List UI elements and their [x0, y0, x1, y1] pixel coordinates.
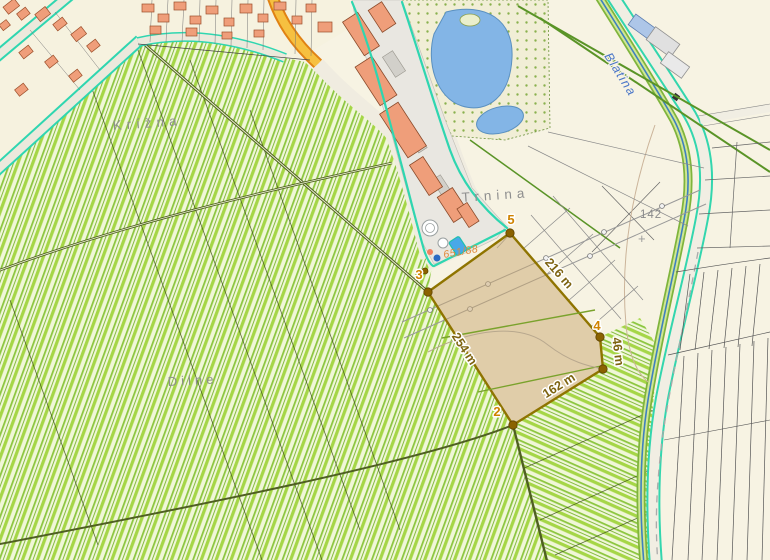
- blue-dot: [434, 255, 441, 262]
- measure-vertex-3[interactable]: [424, 288, 432, 296]
- vertex-label-4: 4: [593, 318, 601, 333]
- label-point-142: 142: [640, 209, 662, 221]
- map-svg: 5 4 2 3 216 m 254 m 162 m 46 m Krížna Tr…: [0, 0, 770, 560]
- cross-symbol: +: [638, 231, 646, 246]
- vertex-label-5: 5: [507, 212, 514, 227]
- vertex-label-2: 2: [493, 404, 500, 419]
- vertex-label-3: 3: [415, 267, 422, 282]
- pond-island: [460, 14, 480, 26]
- measure-vertex-4[interactable]: [596, 333, 604, 341]
- measure-vertex-3b[interactable]: [422, 268, 428, 274]
- map-canvas[interactable]: 5 4 2 3 216 m 254 m 162 m 46 m Krížna Tr…: [0, 0, 770, 560]
- tank: [422, 220, 438, 236]
- orange-dot: [427, 249, 433, 255]
- measure-vertex-1[interactable]: [599, 365, 607, 373]
- measure-vertex-5[interactable]: [506, 229, 514, 237]
- measure-vertex-2[interactable]: [509, 421, 517, 429]
- label-dilne: Dilne: [167, 371, 217, 389]
